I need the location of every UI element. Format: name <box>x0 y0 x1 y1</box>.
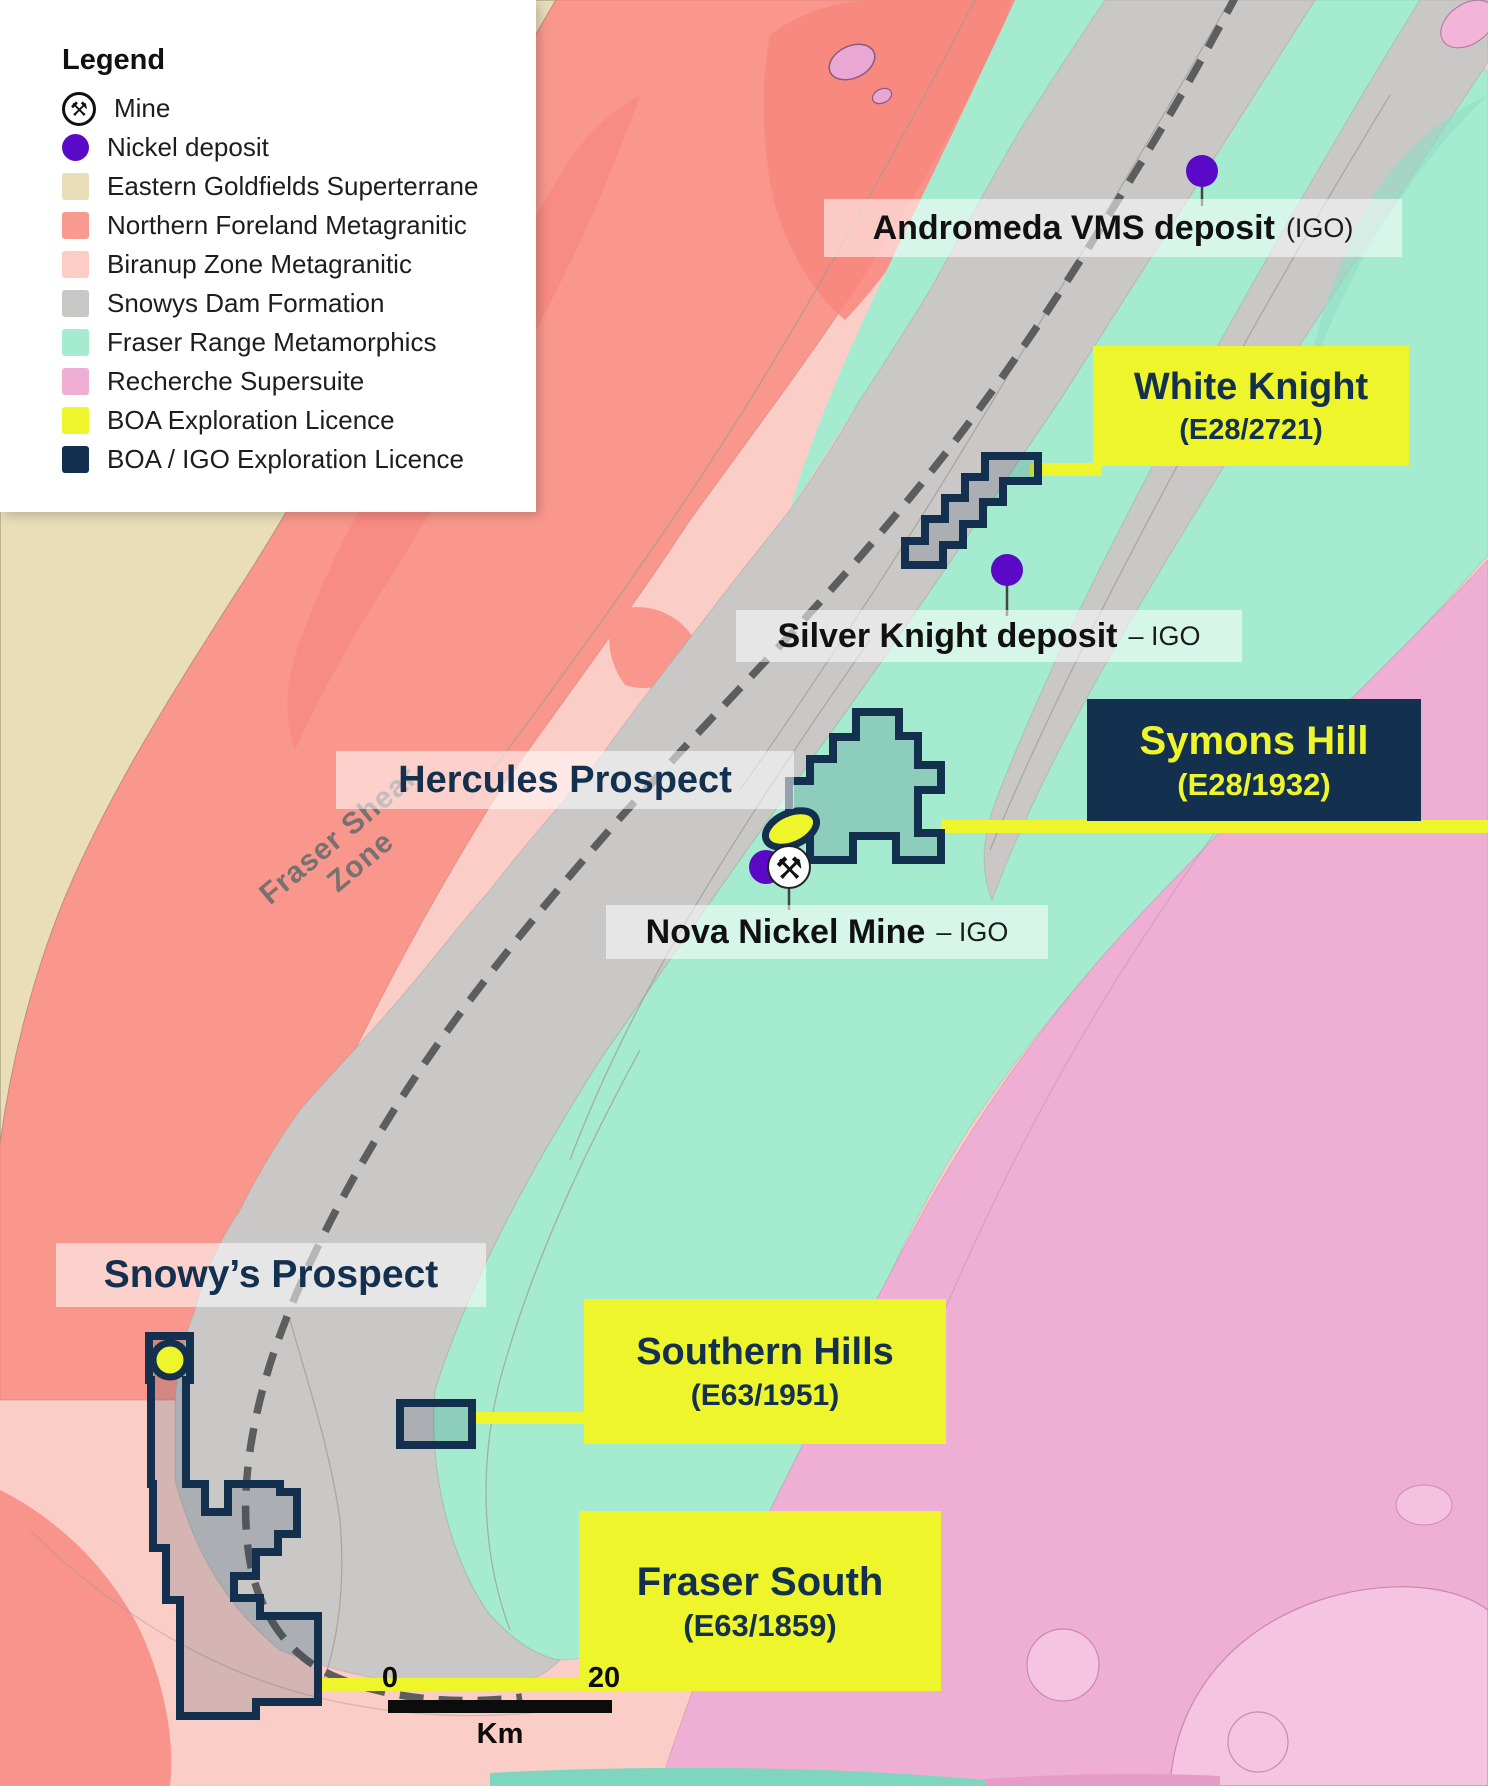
legend-item-boa-licence: BOA Exploration Licence <box>0 401 536 440</box>
legend-item-label: Recherche Supersuite <box>107 366 364 397</box>
legend-title: Legend <box>0 0 536 89</box>
legend-item-northern-foreland: Northern Foreland Metagranitic <box>0 206 536 245</box>
snowys-prospect-name: Snowy’s Prospect <box>104 1253 439 1297</box>
scale-bar-end: 20 <box>588 1662 620 1695</box>
mine-icon: ⚒ <box>62 92 96 126</box>
color-swatch <box>62 368 89 395</box>
southern-hills-name: Southern Hills <box>636 1329 894 1377</box>
region-pink-blob-1 <box>1027 1629 1099 1701</box>
silver-knight-name: Silver Knight deposit <box>777 617 1117 656</box>
legend-item-label: BOA / IGO Exploration Licence <box>107 444 464 475</box>
color-swatch <box>62 446 89 473</box>
fraser-south-tenement-label: Fraser South (E63/1859) <box>579 1511 941 1691</box>
legend-item-label: Eastern Goldfields Superterrane <box>107 171 478 202</box>
southern-hills-tenement-id: (E63/1951) <box>691 1377 839 1415</box>
region-pink-blob-2 <box>1228 1712 1288 1772</box>
connector-southern-hills <box>470 1412 592 1424</box>
color-swatch <box>62 251 89 278</box>
nova-mine-owner: – IGO <box>936 917 1008 948</box>
andromeda-nickel-dot <box>1186 155 1218 187</box>
color-swatch <box>62 290 89 317</box>
white-knight-tenement-label: White Knight (E28/2721) <box>1093 346 1409 466</box>
fraser-south-name: Fraser South <box>637 1557 884 1607</box>
legend-item-biranup-zone: Biranup Zone Metagranitic <box>0 245 536 284</box>
snowys-prospect-label: Snowy’s Prospect <box>56 1243 486 1307</box>
color-swatch <box>62 173 89 200</box>
nickel-deposit-dot-icon <box>62 134 89 161</box>
white-knight-name: White Knight <box>1134 364 1368 412</box>
licence-southern-hills-rect <box>400 1403 472 1445</box>
legend-item-recherche: Recherche Supersuite <box>0 362 536 401</box>
legend: Legend ⚒ Mine Nickel deposit Eastern Gol… <box>0 0 536 512</box>
nova-mine-name: Nova Nickel Mine <box>646 913 926 952</box>
legend-item-label: Nickel deposit <box>107 132 269 163</box>
scale-bar: 0 20 Km <box>388 1662 612 1762</box>
fraser-south-tenement-id: (E63/1859) <box>683 1607 836 1646</box>
andromeda-deposit-owner: (IGO) <box>1286 213 1354 244</box>
silver-knight-owner: – IGO <box>1129 621 1201 652</box>
region-pink-blob-3 <box>1396 1485 1452 1525</box>
color-swatch <box>62 329 89 356</box>
symons-hill-name: Symons Hill <box>1140 716 1369 766</box>
legend-item-label: Snowys Dam Formation <box>107 288 384 319</box>
legend-item-snowys-dam: Snowys Dam Formation <box>0 284 536 323</box>
legend-item-label: Biranup Zone Metagranitic <box>107 249 412 280</box>
southern-hills-tenement-label: Southern Hills (E63/1951) <box>584 1299 946 1444</box>
color-swatch <box>62 407 89 434</box>
color-swatch <box>62 212 89 239</box>
geological-map-figure: ⚒ Legend ⚒ Mine Nickel deposit Eastern G… <box>0 0 1488 1786</box>
snowys-prospect-marker <box>153 1343 187 1377</box>
legend-item-nickel-deposit: Nickel deposit <box>0 128 536 167</box>
symons-hill-tenement-label: Symons Hill (E28/1932) <box>1087 699 1421 821</box>
nova-mine-icon-glyph: ⚒ <box>775 851 803 887</box>
hercules-prospect-name: Hercules Prospect <box>398 759 732 802</box>
scale-bar-unit: Km <box>477 1718 524 1751</box>
andromeda-deposit-label: Andromeda VMS deposit (IGO) <box>824 199 1402 257</box>
legend-item-label: Northern Foreland Metagranitic <box>107 210 467 241</box>
nova-nickel-mine-label: Nova Nickel Mine – IGO <box>606 905 1048 959</box>
silver-knight-deposit-label: Silver Knight deposit – IGO <box>736 610 1242 662</box>
scale-bar-start: 0 <box>382 1662 398 1695</box>
legend-item-eastern-goldfields: Eastern Goldfields Superterrane <box>0 167 536 206</box>
legend-item-label: Fraser Range Metamorphics <box>107 327 436 358</box>
legend-item-fraser-range: Fraser Range Metamorphics <box>0 323 536 362</box>
connector-symons-hill <box>941 820 1488 833</box>
scale-bar-rule <box>388 1700 612 1713</box>
andromeda-deposit-name: Andromeda VMS deposit <box>873 209 1275 248</box>
legend-item-label: BOA Exploration Licence <box>107 405 395 436</box>
legend-item-mine: ⚒ Mine <box>0 89 536 128</box>
white-knight-tenement-id: (E28/2721) <box>1179 412 1323 448</box>
silver-knight-nickel-dot <box>991 554 1023 586</box>
symons-hill-tenement-id: (E28/1932) <box>1177 766 1330 805</box>
legend-item-label: Mine <box>114 93 170 124</box>
hercules-prospect-label: Hercules Prospect <box>336 751 794 809</box>
legend-item-boa-igo-licence: BOA / IGO Exploration Licence <box>0 440 536 479</box>
